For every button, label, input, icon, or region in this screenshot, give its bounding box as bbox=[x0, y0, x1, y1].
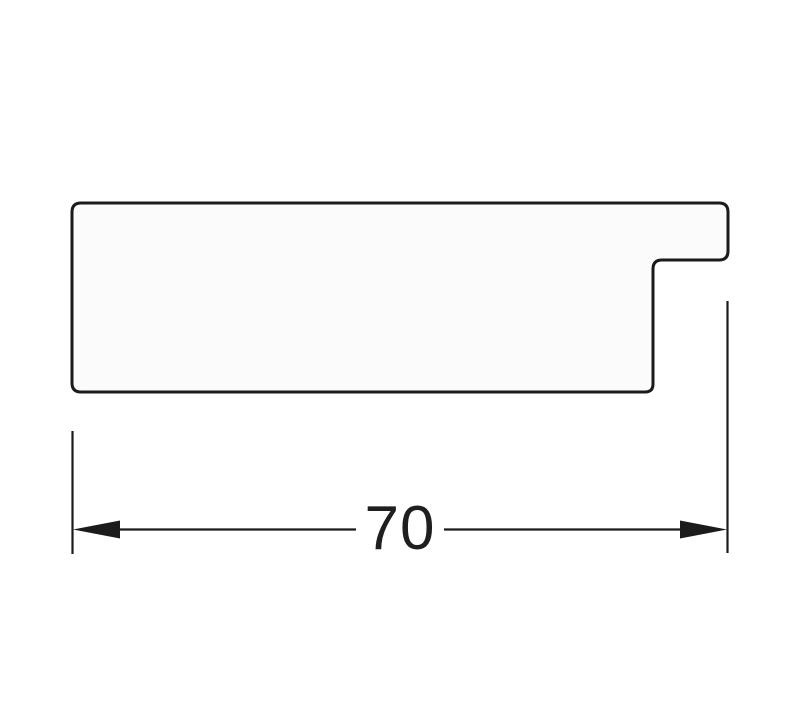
technical-drawing-canvas: 70 bbox=[0, 0, 800, 711]
dimension-arrow-left bbox=[73, 521, 120, 539]
profile-outline bbox=[72, 203, 728, 392]
profile-drawing bbox=[0, 0, 800, 711]
dimension-label: 70 bbox=[330, 494, 470, 564]
dimension-arrow-right bbox=[680, 521, 727, 539]
